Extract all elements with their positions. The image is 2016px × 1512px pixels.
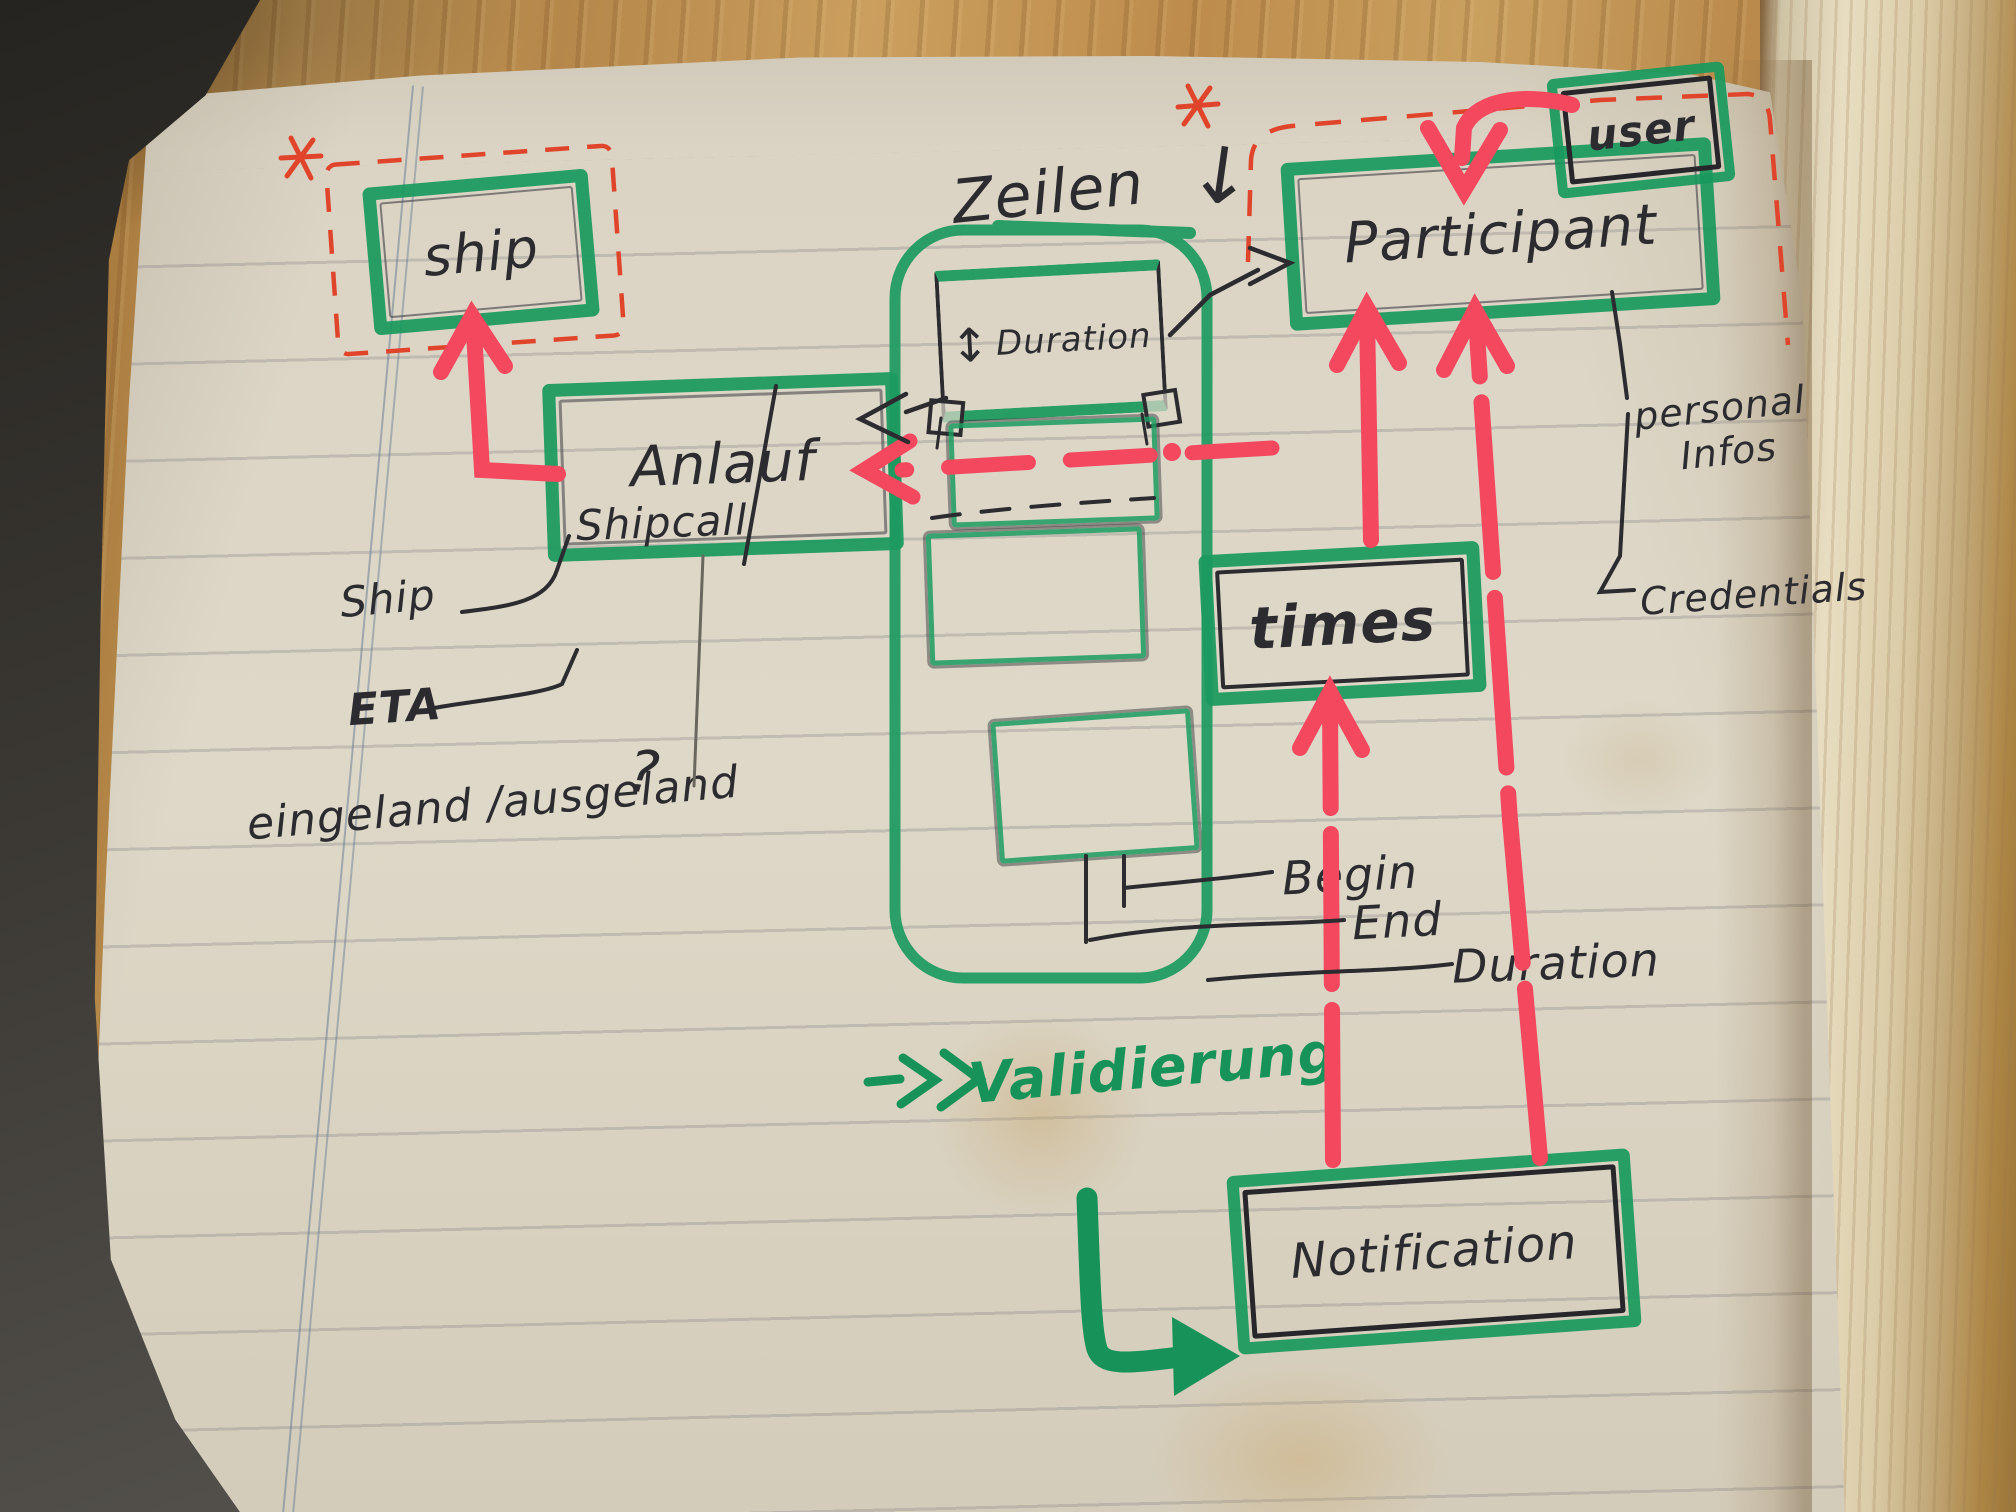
entity-participant-label: Participant	[1342, 192, 1659, 276]
entity-times-inner: times	[1215, 558, 1470, 690]
page-fold-shadow	[1716, 60, 1812, 1512]
entity-ship-label: ship	[421, 216, 542, 289]
entity-ship-box: ship	[362, 168, 600, 335]
entity-user-inner: user	[1561, 75, 1722, 184]
end-attribute-note: End	[1351, 892, 1444, 951]
duration-attribute-note: Duration	[1451, 932, 1661, 993]
entity-ship-inner: ship	[379, 186, 582, 318]
record-box-3	[990, 708, 1199, 864]
notebook-photo: ship Anlauf Shipcall Participant user ti…	[0, 0, 2016, 1512]
duration-box-inner: ↕ Duration	[942, 274, 1160, 409]
entity-notification-label: Notification	[1289, 1214, 1580, 1290]
ship-attribute-note: Ship	[338, 570, 438, 627]
entity-user-box: user	[1546, 61, 1736, 199]
record-box-1	[948, 416, 1160, 527]
entity-user-label: user	[1585, 100, 1698, 160]
record-box-2	[926, 526, 1146, 665]
entity-times-box: times	[1198, 541, 1487, 706]
updown-arrow-icon: ↕	[949, 317, 991, 373]
personal-infos-note: personal Infos	[1632, 377, 1812, 483]
entity-notification-box: Notification	[1226, 1148, 1642, 1355]
zeilen-down-arrow-icon: ↓	[1182, 128, 1260, 226]
entity-times-label: times	[1247, 585, 1437, 663]
entity-shipcall-sublabel: Shipcall	[575, 495, 748, 550]
eta-attribute-note: ETA	[346, 679, 443, 736]
entity-shipcall-box: Anlauf Shipcall	[542, 372, 904, 562]
duration-box: ↕ Duration	[934, 259, 1168, 423]
entity-shipcall-inner: Anlauf Shipcall	[559, 388, 888, 545]
entity-shipcall-label: Anlauf	[629, 428, 816, 499]
entity-notification-inner: Notification	[1242, 1164, 1625, 1339]
duration-box-label: Duration	[995, 316, 1153, 364]
